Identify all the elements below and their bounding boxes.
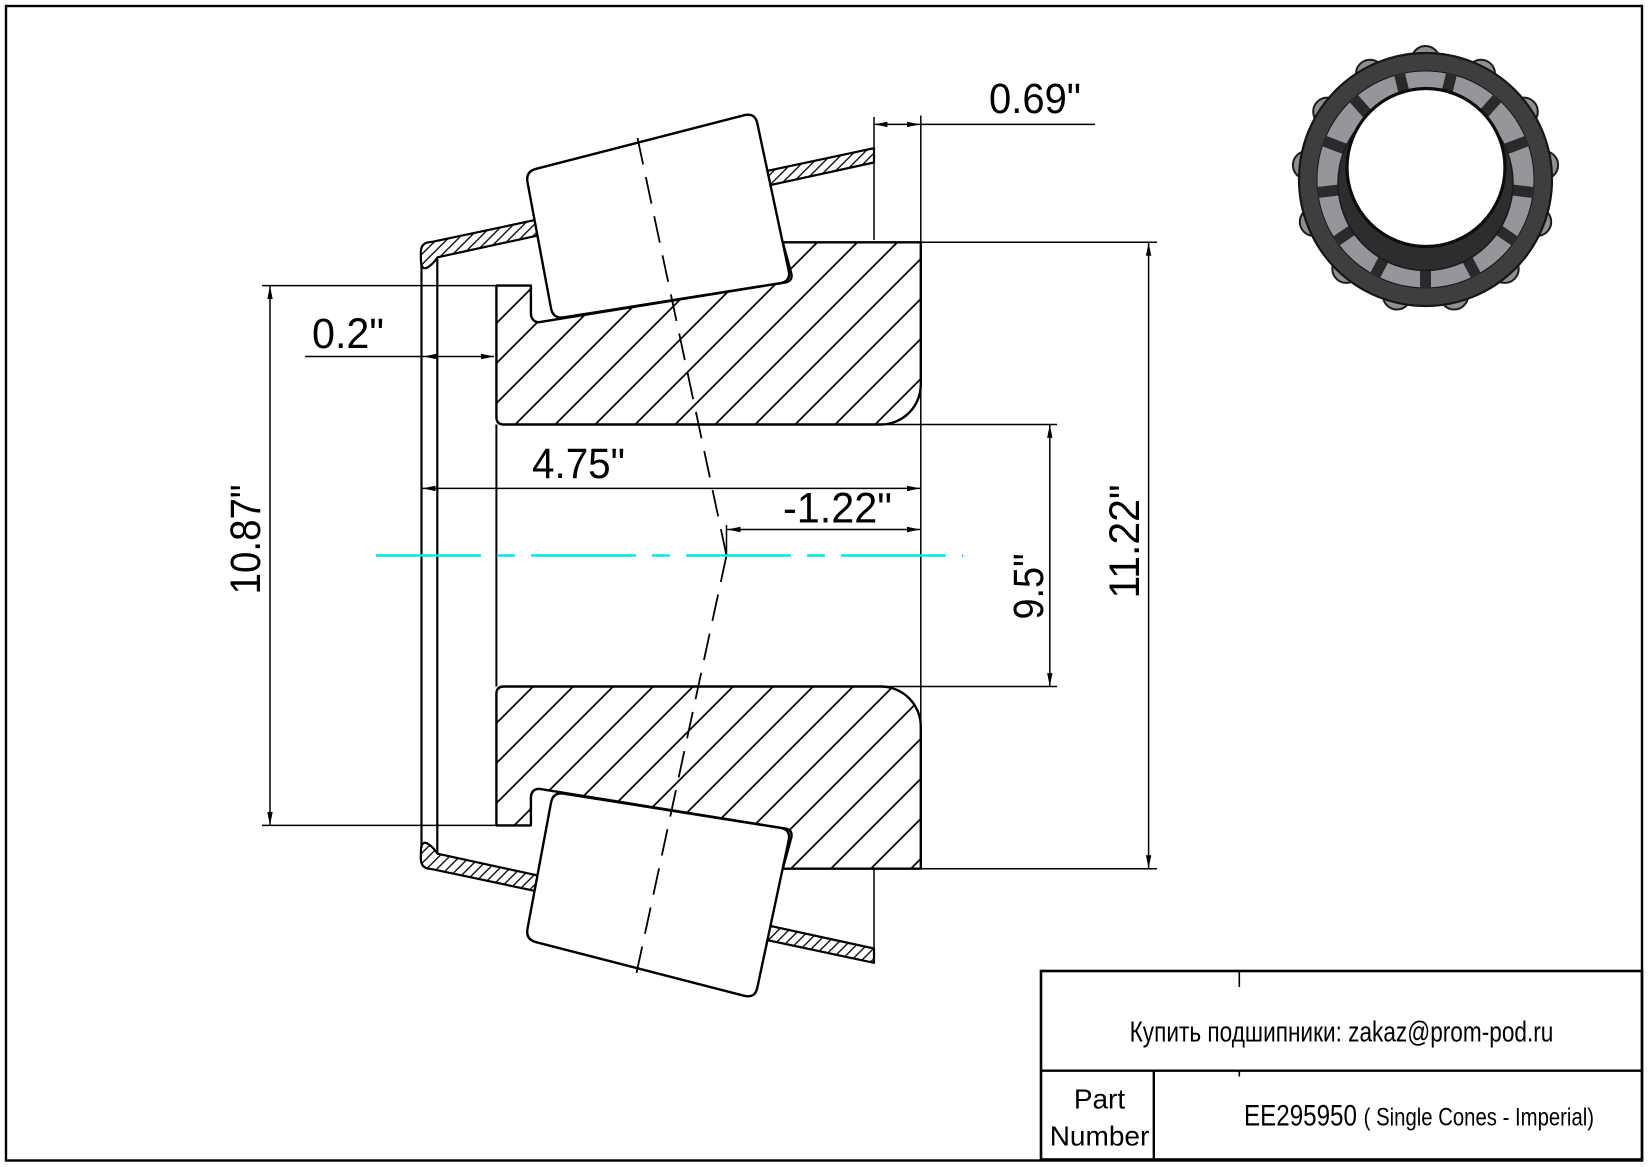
- svg-text:10.87": 10.87": [222, 484, 270, 594]
- svg-text:0.2": 0.2": [312, 310, 384, 358]
- svg-text:EE295950 ( Single Cones - Impe: EE295950 ( Single Cones - Imperial): [1244, 1099, 1594, 1132]
- svg-text:0.69": 0.69": [989, 75, 1081, 123]
- svg-text:Part: Part: [1074, 1084, 1126, 1115]
- svg-text:-1.22": -1.22": [783, 485, 892, 533]
- svg-text:4.75": 4.75": [532, 440, 625, 488]
- svg-text:Купить подшипники: zakaz@prom-: Купить подшипники: zakaz@prom-pod.ru: [1130, 1015, 1554, 1048]
- svg-text:9.5": 9.5": [1005, 554, 1053, 620]
- svg-text:11.22": 11.22": [1101, 485, 1149, 599]
- svg-text:Number: Number: [1050, 1120, 1150, 1151]
